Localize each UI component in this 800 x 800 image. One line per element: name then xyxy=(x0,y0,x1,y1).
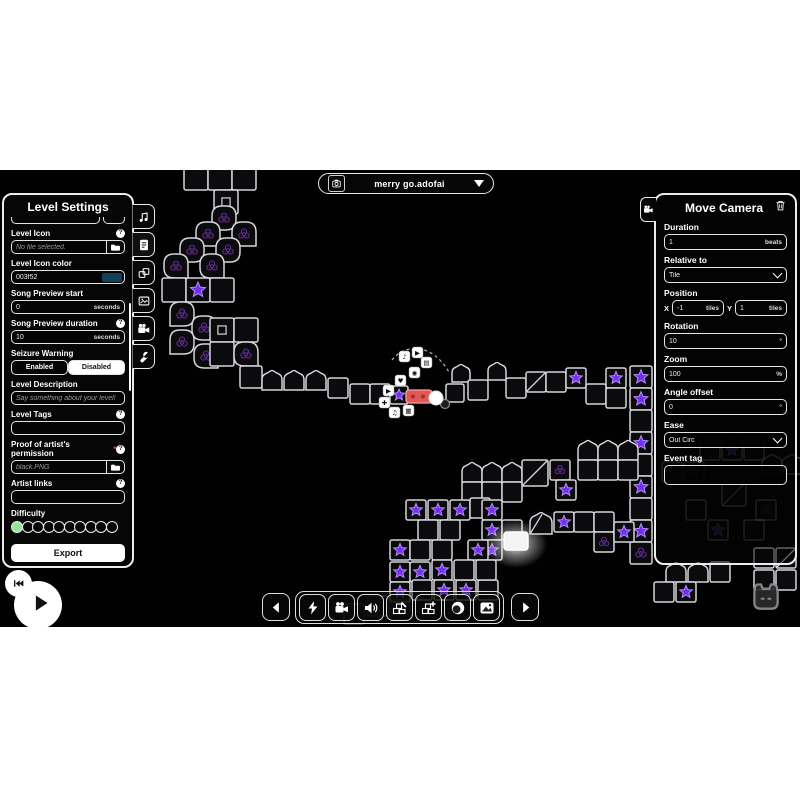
decoration-edit-icon xyxy=(392,600,408,616)
play-icon xyxy=(29,592,51,614)
sidebar-tab-music-note[interactable] xyxy=(132,204,155,229)
event-badge[interactable]: ▶ xyxy=(383,385,394,396)
video-camera-icon xyxy=(137,322,151,336)
event-badge[interactable]: ▦ xyxy=(403,405,414,416)
event-badge[interactable]: ▶ xyxy=(412,347,423,358)
sidebar-tab-decorations[interactable] xyxy=(132,260,155,285)
input-level-icon-color[interactable]: 003f52 xyxy=(11,270,125,284)
toolbar-button-lightning[interactable] xyxy=(299,594,326,621)
sidebar-tab-video-camera[interactable] xyxy=(132,316,155,341)
field-label-ease: Ease xyxy=(664,420,787,430)
axis-label-y: Y xyxy=(727,304,732,313)
input-duration[interactable]: 1beats xyxy=(664,234,787,250)
field-label-zoom: Zoom xyxy=(664,354,787,364)
browse-button[interactable] xyxy=(106,460,125,474)
svg-text:◉: ◉ xyxy=(412,369,418,377)
difficulty-label: Difficulty xyxy=(11,509,125,518)
field-label-level-tags: Level Tags? xyxy=(11,410,125,419)
field-label-song-preview-duration: Song Preview duration? xyxy=(11,319,125,328)
browse-button[interactable] xyxy=(106,240,125,254)
input-rotation[interactable]: 10° xyxy=(664,333,787,349)
file-text-icon xyxy=(137,238,151,252)
next-arrow-icon xyxy=(518,600,533,615)
difficulty-selector[interactable] xyxy=(11,521,125,533)
next-event-button[interactable] xyxy=(511,593,539,621)
toolbar-button-decoration-edit[interactable] xyxy=(386,594,413,621)
sidebar-tab-file-text[interactable] xyxy=(132,232,155,257)
field-label-angle-offset: Angle offset xyxy=(664,387,787,397)
axis-label-x: X xyxy=(664,304,669,313)
prev-event-button[interactable] xyxy=(262,593,290,621)
event-title: Move Camera xyxy=(674,201,774,215)
input-event-tag[interactable] xyxy=(664,465,787,485)
toggle-option-disabled[interactable]: Disabled xyxy=(68,360,125,375)
camera-capture-icon xyxy=(328,175,345,192)
chevron-down-icon xyxy=(773,434,783,444)
event-badge[interactable]: ♪ xyxy=(399,351,410,362)
panel-title: Level Settings xyxy=(11,200,125,214)
video-camera-icon xyxy=(643,204,654,215)
input-position-y[interactable]: 1tiles xyxy=(735,300,787,316)
svg-text:▶: ▶ xyxy=(386,387,391,395)
play-button[interactable] xyxy=(14,581,62,627)
dropdown-triangle-icon xyxy=(474,180,484,187)
input-level-description[interactable]: Say something about your level! xyxy=(11,391,125,405)
planet-icon xyxy=(450,600,466,616)
video-camera-icon xyxy=(334,600,350,616)
prev-arrow-icon xyxy=(269,600,284,615)
field-label-level-icon-color: Level Icon color xyxy=(11,259,125,268)
decorations-icon xyxy=(137,266,151,280)
field-label-proof-of-artist-s-permission: Proof of artist's permission*? xyxy=(11,440,125,458)
event-toolbar xyxy=(295,591,504,624)
field-label-event-tag: Event tag xyxy=(664,453,787,463)
field-label-seizure-warning: Seizure Warning xyxy=(11,349,125,358)
input-artist-links[interactable] xyxy=(11,490,125,504)
sidebar-tab-wrench[interactable] xyxy=(132,344,155,369)
settings-tab-strip xyxy=(132,204,157,369)
input-level-tags[interactable] xyxy=(11,421,125,435)
field-label-song-preview-start: Song Preview start xyxy=(11,289,125,298)
field-label-level-icon: Level Icon? xyxy=(11,229,125,238)
wrench-icon xyxy=(137,350,151,364)
clipped-field-row xyxy=(11,217,125,224)
event-badge[interactable]: ◉ xyxy=(409,367,420,378)
svg-text:♫: ♫ xyxy=(392,409,398,417)
help-icon[interactable]: ? xyxy=(116,319,125,328)
svg-text:♥: ♥ xyxy=(398,377,404,385)
image-filter-icon xyxy=(479,600,495,616)
input-zoom[interactable]: 100% xyxy=(664,366,787,382)
field-label-position: Position xyxy=(664,288,787,298)
event-badge[interactable]: ▤ xyxy=(421,357,432,368)
toolbar-button-video-camera[interactable] xyxy=(328,594,355,621)
auto-cat-icon xyxy=(746,577,786,617)
color-swatch[interactable] xyxy=(102,273,122,282)
sidebar-tab-image[interactable] xyxy=(132,288,155,313)
toggle-option-enabled[interactable]: Enabled xyxy=(11,360,68,375)
select-ease[interactable]: Out Circ xyxy=(664,432,787,448)
speaker-icon xyxy=(363,600,379,616)
image-icon xyxy=(137,294,151,308)
input-proof-of-artist-s-permission[interactable]: black.PNG xyxy=(11,460,106,474)
file-selector[interactable]: merry go.adofai xyxy=(318,173,494,194)
toolbar-button-decoration-add[interactable] xyxy=(415,594,442,621)
move-camera-panel: Move Camera Duration1beatsRelative toTil… xyxy=(654,193,797,565)
filename-label: merry go.adofai xyxy=(345,179,474,189)
auto-cat-icon[interactable] xyxy=(746,577,786,622)
scrollbar-thumb[interactable] xyxy=(129,303,132,391)
toolbar-button-image-filter[interactable] xyxy=(473,594,500,621)
input-angle-offset[interactable]: 0° xyxy=(664,399,787,415)
field-label-duration: Duration xyxy=(664,222,787,232)
folder-icon xyxy=(110,242,121,253)
editor-window: ♪▶▤◉♥▶✚♫▦ merry go.adofai Level Settings… xyxy=(0,0,800,800)
event-badge[interactable]: ♥ xyxy=(395,375,406,386)
event-badge[interactable]: ✚ xyxy=(379,397,390,408)
help-icon[interactable]: ? xyxy=(116,229,125,238)
svg-text:▤: ▤ xyxy=(423,359,429,367)
decoration-add-icon xyxy=(421,600,437,616)
help-icon[interactable]: ? xyxy=(116,479,125,488)
toolbar-button-speaker[interactable] xyxy=(357,594,384,621)
field-label-artist-links: Artist links? xyxy=(11,479,125,488)
lightning-icon xyxy=(305,600,321,616)
svg-text:▶: ▶ xyxy=(415,349,420,357)
svg-text:▦: ▦ xyxy=(405,407,411,415)
folder-icon xyxy=(110,462,121,473)
field-label-rotation: Rotation xyxy=(664,321,787,331)
level-settings-panel: Level Settings Level Icon?No file select… xyxy=(2,193,134,568)
toolbar-button-planet[interactable] xyxy=(444,594,471,621)
field-label-relative-to: Relative to xyxy=(664,255,787,265)
event-badge[interactable]: ♫ xyxy=(389,407,400,418)
input-position-x[interactable]: -1tiles xyxy=(672,300,724,316)
difficulty-circle-10[interactable] xyxy=(106,521,118,533)
help-icon[interactable]: ? xyxy=(116,445,125,454)
music-note-icon xyxy=(137,210,151,224)
select-relative-to[interactable]: Tile xyxy=(664,267,787,283)
game-viewport[interactable]: ♪▶▤◉♥▶✚♫▦ merry go.adofai Level Settings… xyxy=(0,170,800,627)
trash-icon xyxy=(774,199,787,212)
export-button[interactable]: Export xyxy=(11,544,125,562)
camera-capture-icon xyxy=(331,178,342,189)
trash-icon[interactable] xyxy=(774,199,787,217)
toggle-seizure-warning: EnabledDisabled xyxy=(11,360,125,375)
help-icon[interactable]: ? xyxy=(116,410,125,419)
event-tab-move-camera[interactable] xyxy=(640,197,656,222)
input-level-icon[interactable]: No file selected. xyxy=(11,240,106,254)
chevron-down-icon xyxy=(773,269,783,279)
svg-text:✚: ✚ xyxy=(382,399,388,407)
field-label-level-description: Level Description xyxy=(11,380,125,389)
svg-text:♪: ♪ xyxy=(402,353,406,361)
input-song-preview-start[interactable]: 0seconds xyxy=(11,300,125,314)
input-song-preview-duration[interactable]: 10seconds xyxy=(11,330,125,344)
